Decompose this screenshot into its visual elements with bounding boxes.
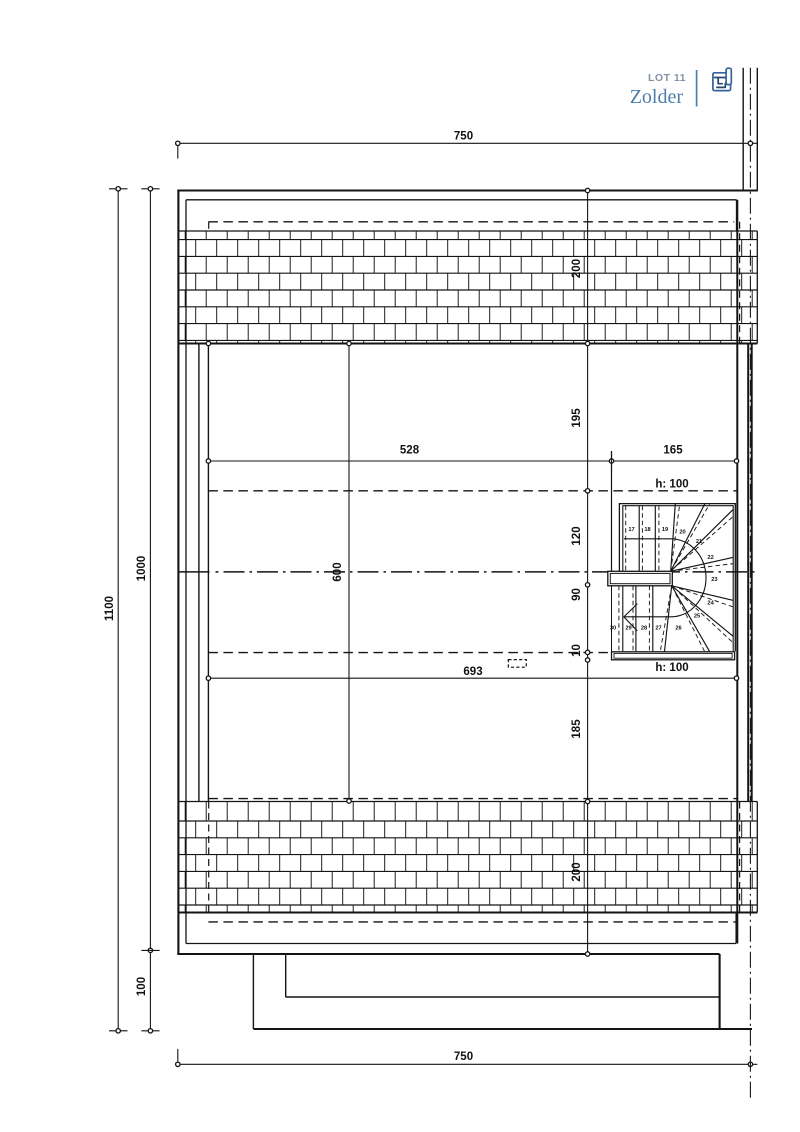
svg-text:LOT 11: LOT 11	[648, 72, 686, 84]
svg-text:120: 120	[571, 526, 583, 545]
svg-text:200: 200	[571, 259, 583, 278]
svg-text:26: 26	[675, 625, 681, 631]
svg-text:195: 195	[571, 408, 583, 428]
svg-text:20: 20	[679, 530, 685, 536]
svg-text:19: 19	[662, 527, 668, 533]
svg-text:21: 21	[696, 539, 702, 545]
svg-text:750: 750	[454, 131, 473, 143]
svg-text:185: 185	[571, 719, 583, 739]
svg-text:Zolder: Zolder	[630, 86, 684, 108]
svg-text:22: 22	[707, 555, 713, 561]
svg-text:750: 750	[454, 1051, 473, 1063]
svg-text:693: 693	[463, 666, 482, 678]
svg-text:600: 600	[332, 562, 344, 581]
svg-text:17: 17	[628, 527, 634, 533]
svg-text:h: 100: h: 100	[655, 662, 688, 674]
svg-text:25: 25	[694, 613, 700, 619]
svg-text:1100: 1100	[104, 596, 116, 621]
svg-text:27: 27	[655, 625, 661, 631]
svg-text:28: 28	[641, 625, 647, 631]
svg-text:1000: 1000	[136, 556, 148, 582]
svg-text:165: 165	[663, 445, 683, 457]
svg-text:30: 30	[610, 625, 616, 631]
svg-text:528: 528	[400, 445, 420, 457]
svg-text:10: 10	[571, 644, 583, 657]
svg-text:100: 100	[136, 977, 148, 996]
svg-text:200: 200	[571, 862, 583, 881]
svg-text:90: 90	[571, 588, 583, 601]
svg-text:29: 29	[625, 625, 631, 631]
svg-text:18: 18	[644, 527, 650, 533]
svg-text:23: 23	[711, 577, 717, 583]
svg-text:24: 24	[707, 600, 714, 606]
svg-text:h: 100: h: 100	[655, 479, 688, 491]
